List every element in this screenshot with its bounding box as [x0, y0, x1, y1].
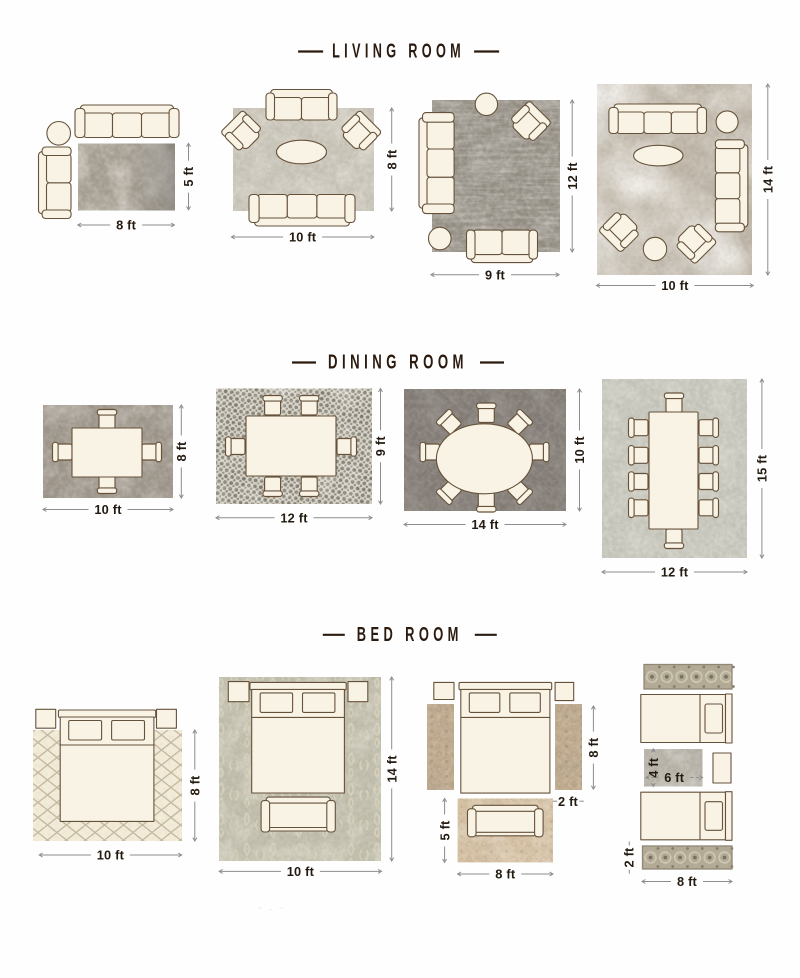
svg-text:8 ft: 8 ft	[495, 867, 516, 882]
svg-text:8 ft: 8 ft	[174, 441, 189, 462]
svg-text:10 ft: 10 ft	[661, 278, 689, 293]
svg-text:12 ft: 12 ft	[565, 162, 580, 190]
svg-text:LIVING ROOM: LIVING ROOM	[332, 40, 465, 63]
svg-text:BED ROOM: BED ROOM	[357, 623, 463, 646]
svg-text:10 ft: 10 ft	[572, 436, 587, 464]
svg-text:10 ft: 10 ft	[287, 864, 315, 879]
svg-text:8 ft: 8 ft	[384, 149, 399, 170]
svg-text:12 ft: 12 ft	[661, 565, 689, 580]
svg-text:12 ft: 12 ft	[280, 510, 308, 525]
svg-text:6 ft: 6 ft	[664, 770, 685, 785]
svg-text:10 ft: 10 ft	[97, 848, 125, 863]
svg-text:2 ft: 2 ft	[558, 794, 579, 809]
svg-text:10 ft: 10 ft	[289, 230, 317, 245]
svg-text:5 ft: 5 ft	[437, 820, 452, 841]
svg-text:10 ft: 10 ft	[94, 502, 122, 517]
svg-text:DINING ROOM: DINING ROOM	[328, 351, 468, 374]
svg-text:14 ft: 14 ft	[471, 517, 499, 532]
svg-text:8 ft: 8 ft	[116, 218, 137, 233]
svg-text:9 ft: 9 ft	[485, 267, 506, 282]
svg-text:8 ft: 8 ft	[677, 874, 698, 889]
svg-text:4 ft: 4 ft	[646, 757, 661, 778]
svg-text:2 ft: 2 ft	[622, 847, 637, 868]
svg-text:15 ft: 15 ft	[755, 454, 770, 482]
svg-text:5 ft: 5 ft	[181, 166, 196, 187]
svg-text:14 ft: 14 ft	[761, 165, 776, 193]
svg-text:~ - ~: ~ - ~	[258, 905, 286, 913]
svg-text:8 ft: 8 ft	[188, 775, 203, 796]
svg-text:9 ft: 9 ft	[373, 436, 388, 457]
svg-text:14 ft: 14 ft	[384, 755, 399, 783]
svg-text:8 ft: 8 ft	[586, 737, 601, 758]
